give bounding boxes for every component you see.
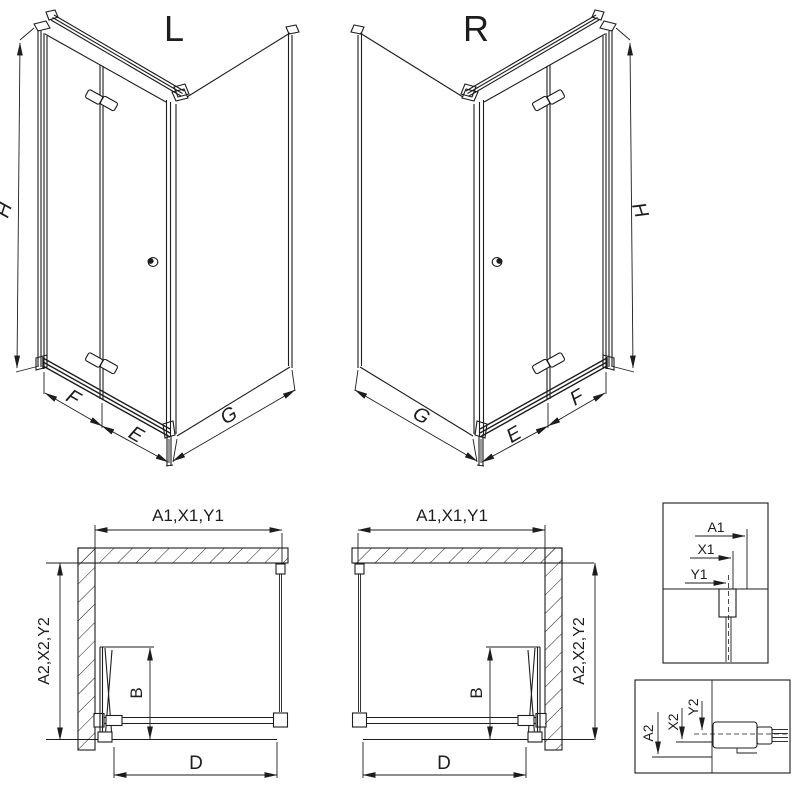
iso-enclosure-geometry-right bbox=[351, 10, 634, 466]
plan-right-depth-label: A2,X2,Y2 bbox=[571, 617, 588, 685]
dim-label-e-left: E bbox=[125, 422, 148, 448]
plan-right-entry-label: D bbox=[437, 753, 451, 774]
height-dimension bbox=[16, 28, 39, 372]
detail-x2-label: X2 bbox=[665, 713, 681, 730]
dim-label-g-left: G bbox=[217, 402, 242, 429]
dim-label-f-left: F bbox=[62, 385, 85, 411]
plan-left-fold-depth-label: B bbox=[127, 687, 146, 698]
dim-label-f-right: F bbox=[566, 384, 589, 410]
dim-label-h-left: H bbox=[0, 199, 17, 220]
plan-left-entry-label: D bbox=[189, 753, 203, 774]
dim-label-g-right: G bbox=[409, 402, 434, 429]
iso-enclosure-geometry bbox=[16, 10, 299, 466]
plan-left-width-label: A1,X1,Y1 bbox=[152, 506, 224, 525]
side-panel bbox=[177, 25, 299, 436]
detail-x1-label: X1 bbox=[697, 541, 714, 557]
plan-folded-door bbox=[98, 647, 122, 742]
bifold-door-panels bbox=[45, 34, 166, 400]
door-hinges bbox=[85, 89, 118, 374]
dim-label-h-right: H bbox=[627, 200, 653, 221]
plan-side-glass bbox=[276, 564, 285, 712]
detail-a1-label: A1 bbox=[707, 519, 724, 535]
wall-profile bbox=[34, 21, 50, 370]
detail-box-depth bbox=[635, 680, 790, 773]
door-knob bbox=[148, 258, 158, 267]
profile-cross-section bbox=[713, 722, 788, 753]
variant-label-right: R bbox=[463, 8, 489, 49]
detail-y2-label: Y2 bbox=[685, 698, 701, 715]
plan-right-width-label: A1,X1,Y1 bbox=[416, 506, 488, 525]
detail-y1-label: Y1 bbox=[690, 566, 707, 582]
corner-post bbox=[166, 89, 188, 466]
technical-drawing-sheet: L H F E G R H F E G bbox=[0, 0, 800, 800]
plan-right-fold-depth-label: B bbox=[467, 687, 486, 698]
shower-enclosure-diagram: L H F E G R H F E G bbox=[0, 0, 800, 800]
detail-a2-label: A2 bbox=[640, 724, 656, 741]
plan-left-depth-label: A2,X2,Y2 bbox=[36, 617, 53, 685]
variant-label-left: L bbox=[164, 8, 184, 49]
dim-label-e-right: E bbox=[503, 422, 526, 448]
